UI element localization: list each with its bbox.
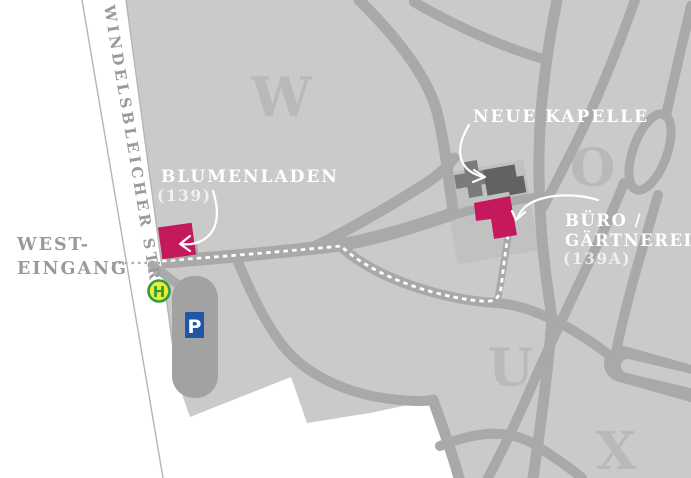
office-label-line1: BÜRO /: [565, 210, 642, 230]
bus-stop-letter: H: [153, 283, 166, 301]
west-entrance-label-line1: WEST-: [16, 235, 90, 255]
flower-shop-number: (139): [157, 186, 212, 205]
office-number: (139A): [563, 249, 631, 268]
section-letter-x: X: [596, 421, 637, 478]
chapel-label: NEUE KAPELLE: [473, 107, 649, 127]
section-letter-w: W: [250, 65, 313, 129]
flower-shop-label: BLUMENLADEN: [161, 167, 339, 187]
parking-sign-letter: P: [188, 316, 202, 338]
bus-stop-icon: H: [149, 281, 170, 302]
chapel-annex-building: [507, 176, 527, 196]
office-label-line2: GÄRTNEREI: [565, 230, 691, 250]
map-canvas: W O U X: [0, 0, 691, 478]
site-map: W O U X: [0, 0, 691, 478]
parking-icon: P: [185, 312, 204, 338]
flower-shop-building: [158, 223, 196, 259]
west-entrance-label-line2: EINGANG: [17, 259, 128, 279]
